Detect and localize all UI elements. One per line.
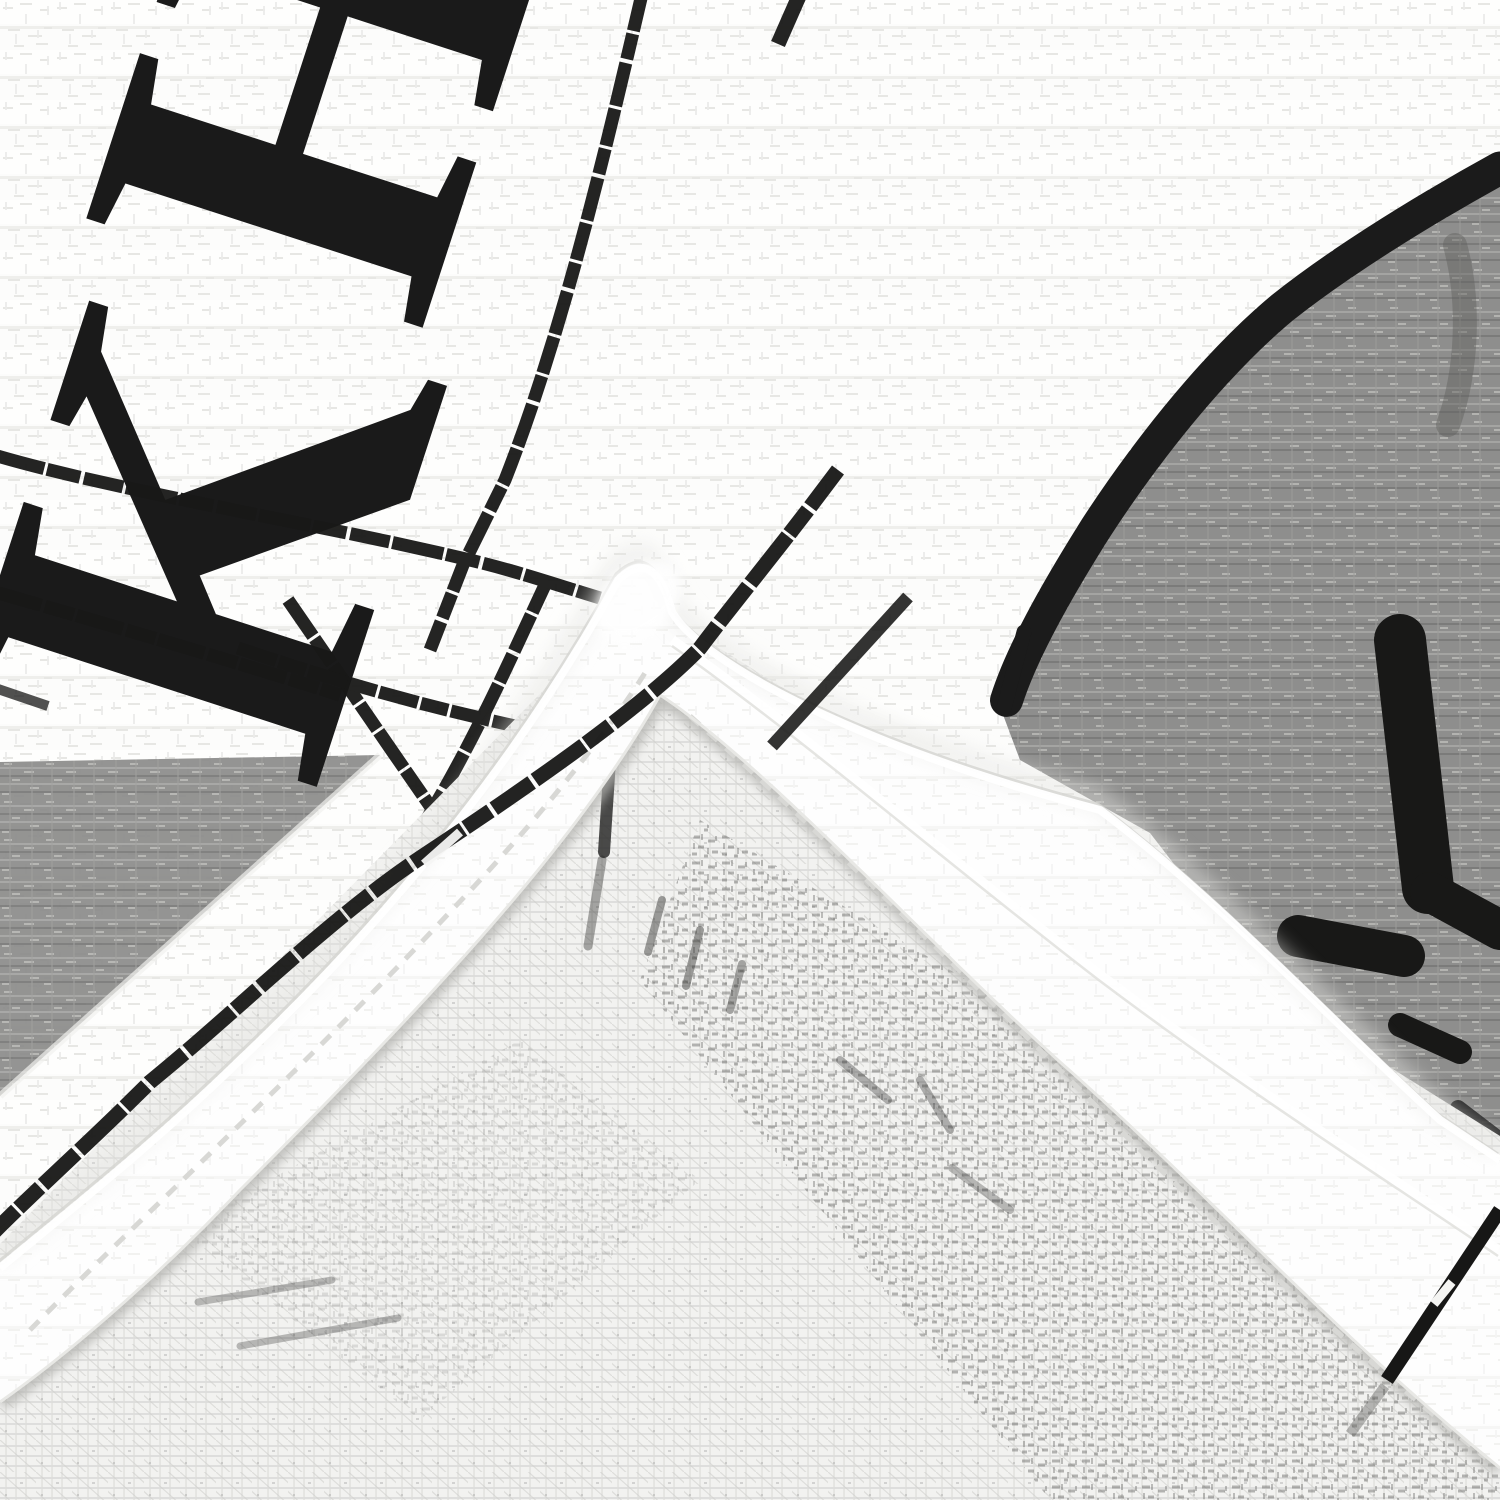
towel-closeup-photo: H K xyxy=(0,0,1500,1500)
